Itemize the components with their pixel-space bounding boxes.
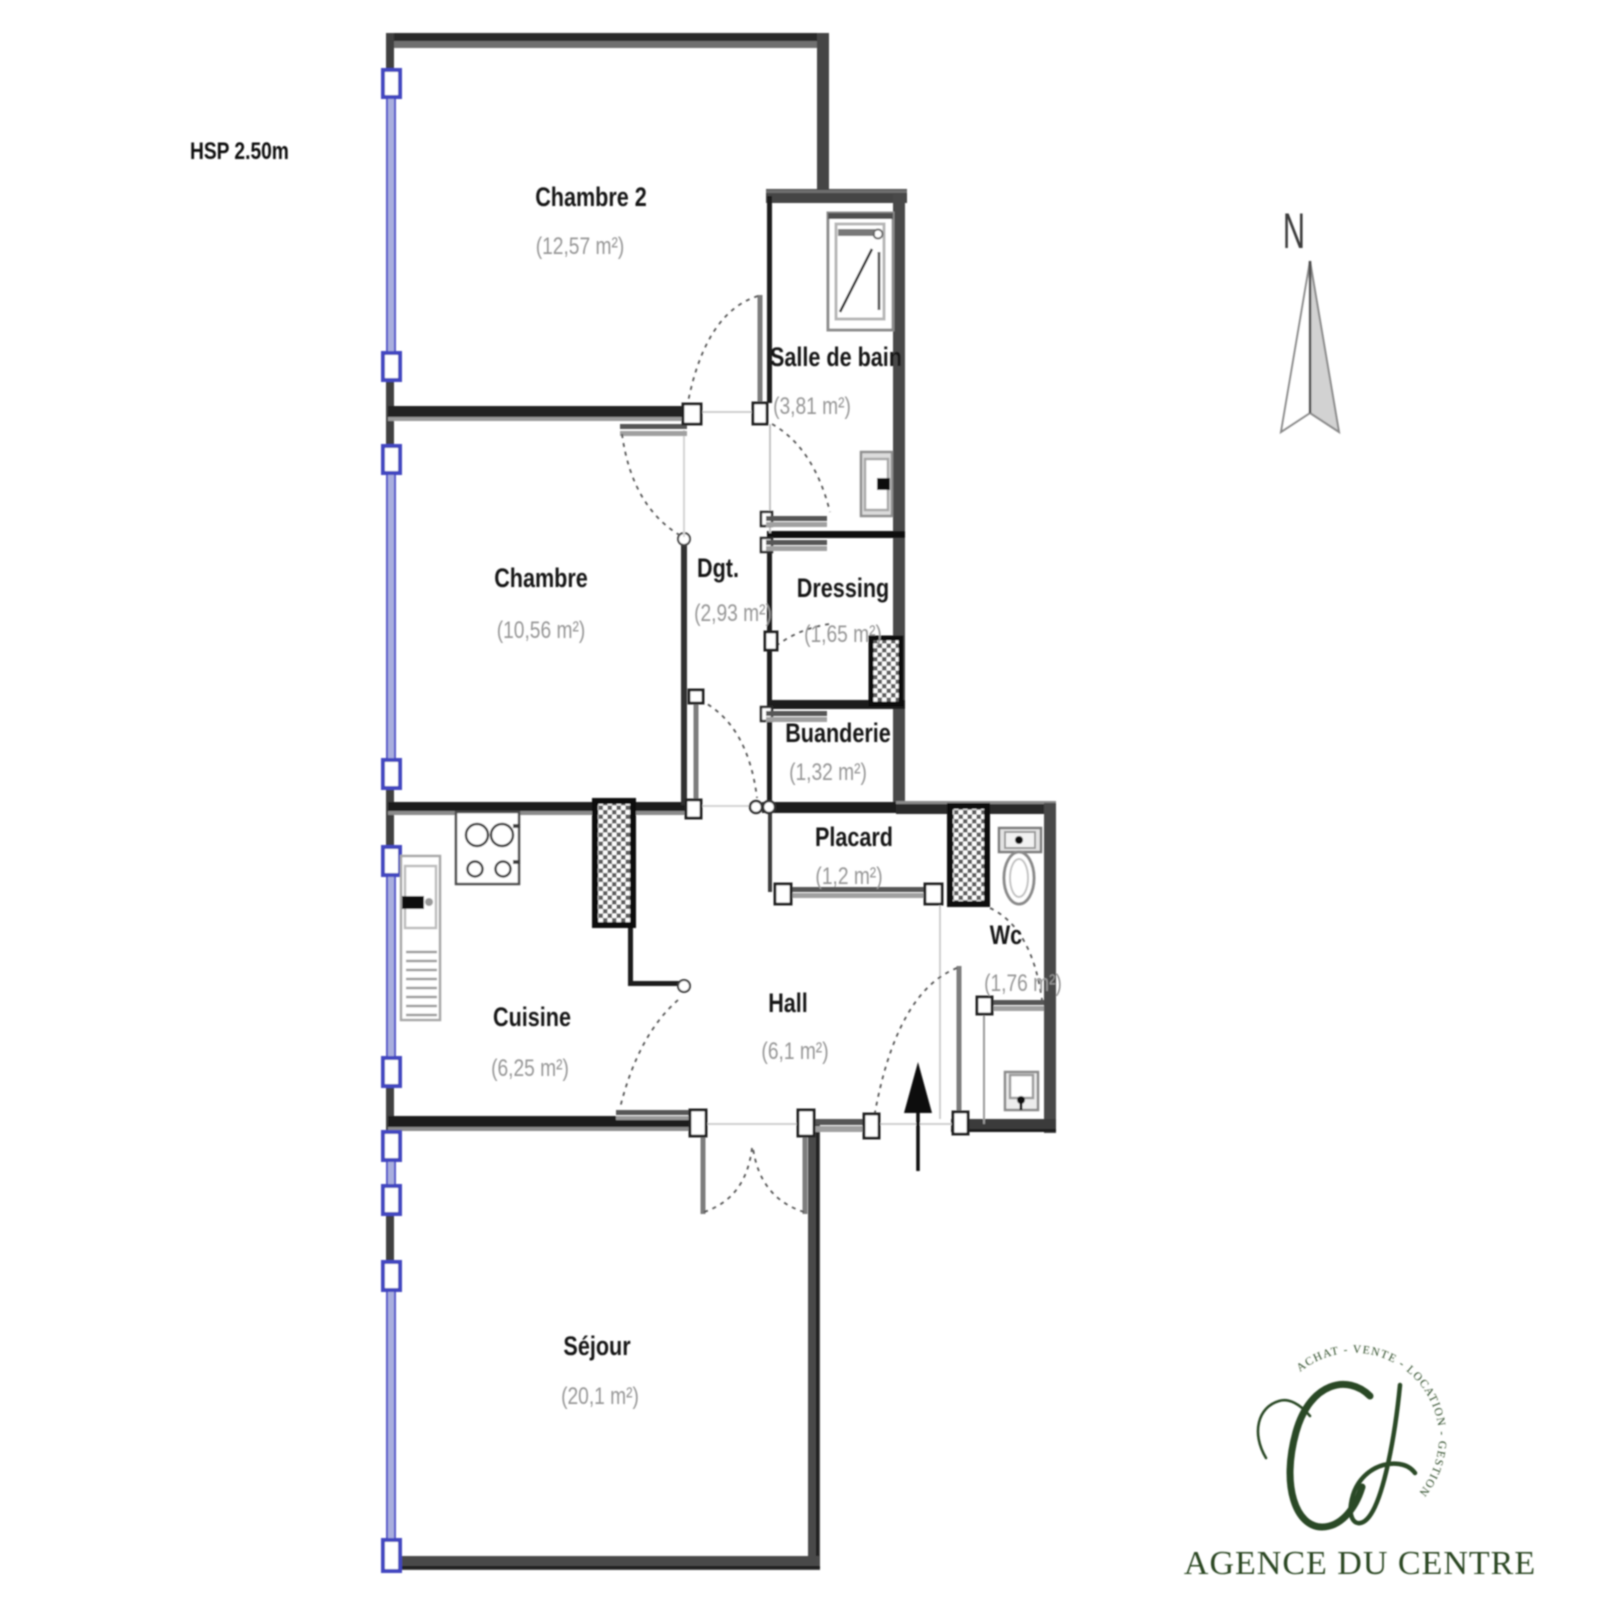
svg-text:N: N — [1283, 202, 1305, 258]
svg-text:(12,57 m²): (12,57 m²) — [536, 232, 625, 260]
svg-text:Dgt.: Dgt. — [697, 554, 739, 584]
svg-text:(6,1 m²): (6,1 m²) — [761, 1037, 828, 1065]
svg-text:(2,93 m²): (2,93 m²) — [694, 599, 772, 627]
svg-text:HSP 2.50m: HSP 2.50m — [190, 137, 289, 165]
svg-text:(1,76 m²): (1,76 m²) — [984, 969, 1062, 997]
svg-text:Placard: Placard — [815, 823, 893, 853]
svg-text:(1,65 m²): (1,65 m²) — [804, 620, 882, 648]
svg-text:Hall: Hall — [768, 989, 808, 1019]
svg-text:(6,25 m²): (6,25 m²) — [491, 1054, 569, 1082]
svg-text:(10,56 m²): (10,56 m²) — [497, 616, 586, 644]
svg-text:Salle de bain: Salle de bain — [770, 343, 902, 373]
svg-text:(20,1 m²): (20,1 m²) — [561, 1382, 639, 1410]
svg-text:Dressing: Dressing — [797, 574, 889, 604]
svg-text:(1,2 m²): (1,2 m²) — [815, 862, 882, 890]
svg-text:Séjour: Séjour — [563, 1332, 631, 1362]
svg-text:(1,32 m²): (1,32 m²) — [789, 758, 867, 786]
svg-text:Cuisine: Cuisine — [493, 1003, 571, 1033]
svg-text:Chambre: Chambre — [494, 564, 588, 594]
svg-text:AGENCE DU CENTRE: AGENCE DU CENTRE — [1184, 1545, 1536, 1582]
svg-text:Buanderie: Buanderie — [785, 719, 891, 749]
svg-text:Wc: Wc — [990, 921, 1022, 951]
svg-text:Chambre 2: Chambre 2 — [535, 183, 647, 213]
svg-text:(3,81 m²): (3,81 m²) — [773, 392, 851, 420]
